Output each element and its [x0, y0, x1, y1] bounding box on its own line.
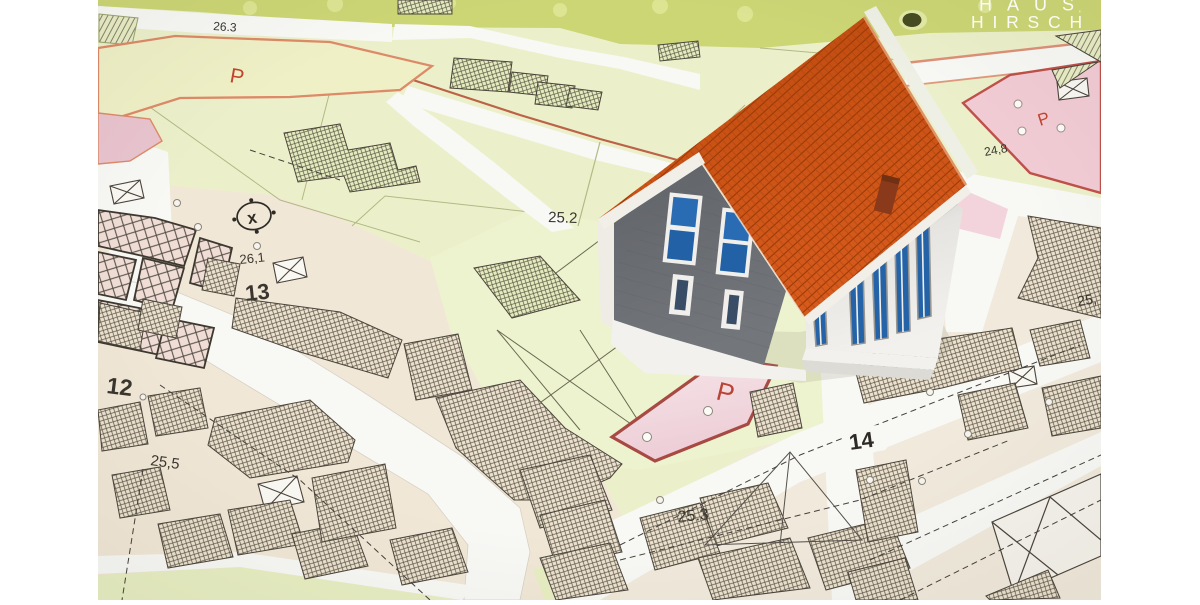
svg-text:HIRSCH: HIRSCH [971, 12, 1091, 32]
svg-text:': ' [1079, 9, 1081, 19]
